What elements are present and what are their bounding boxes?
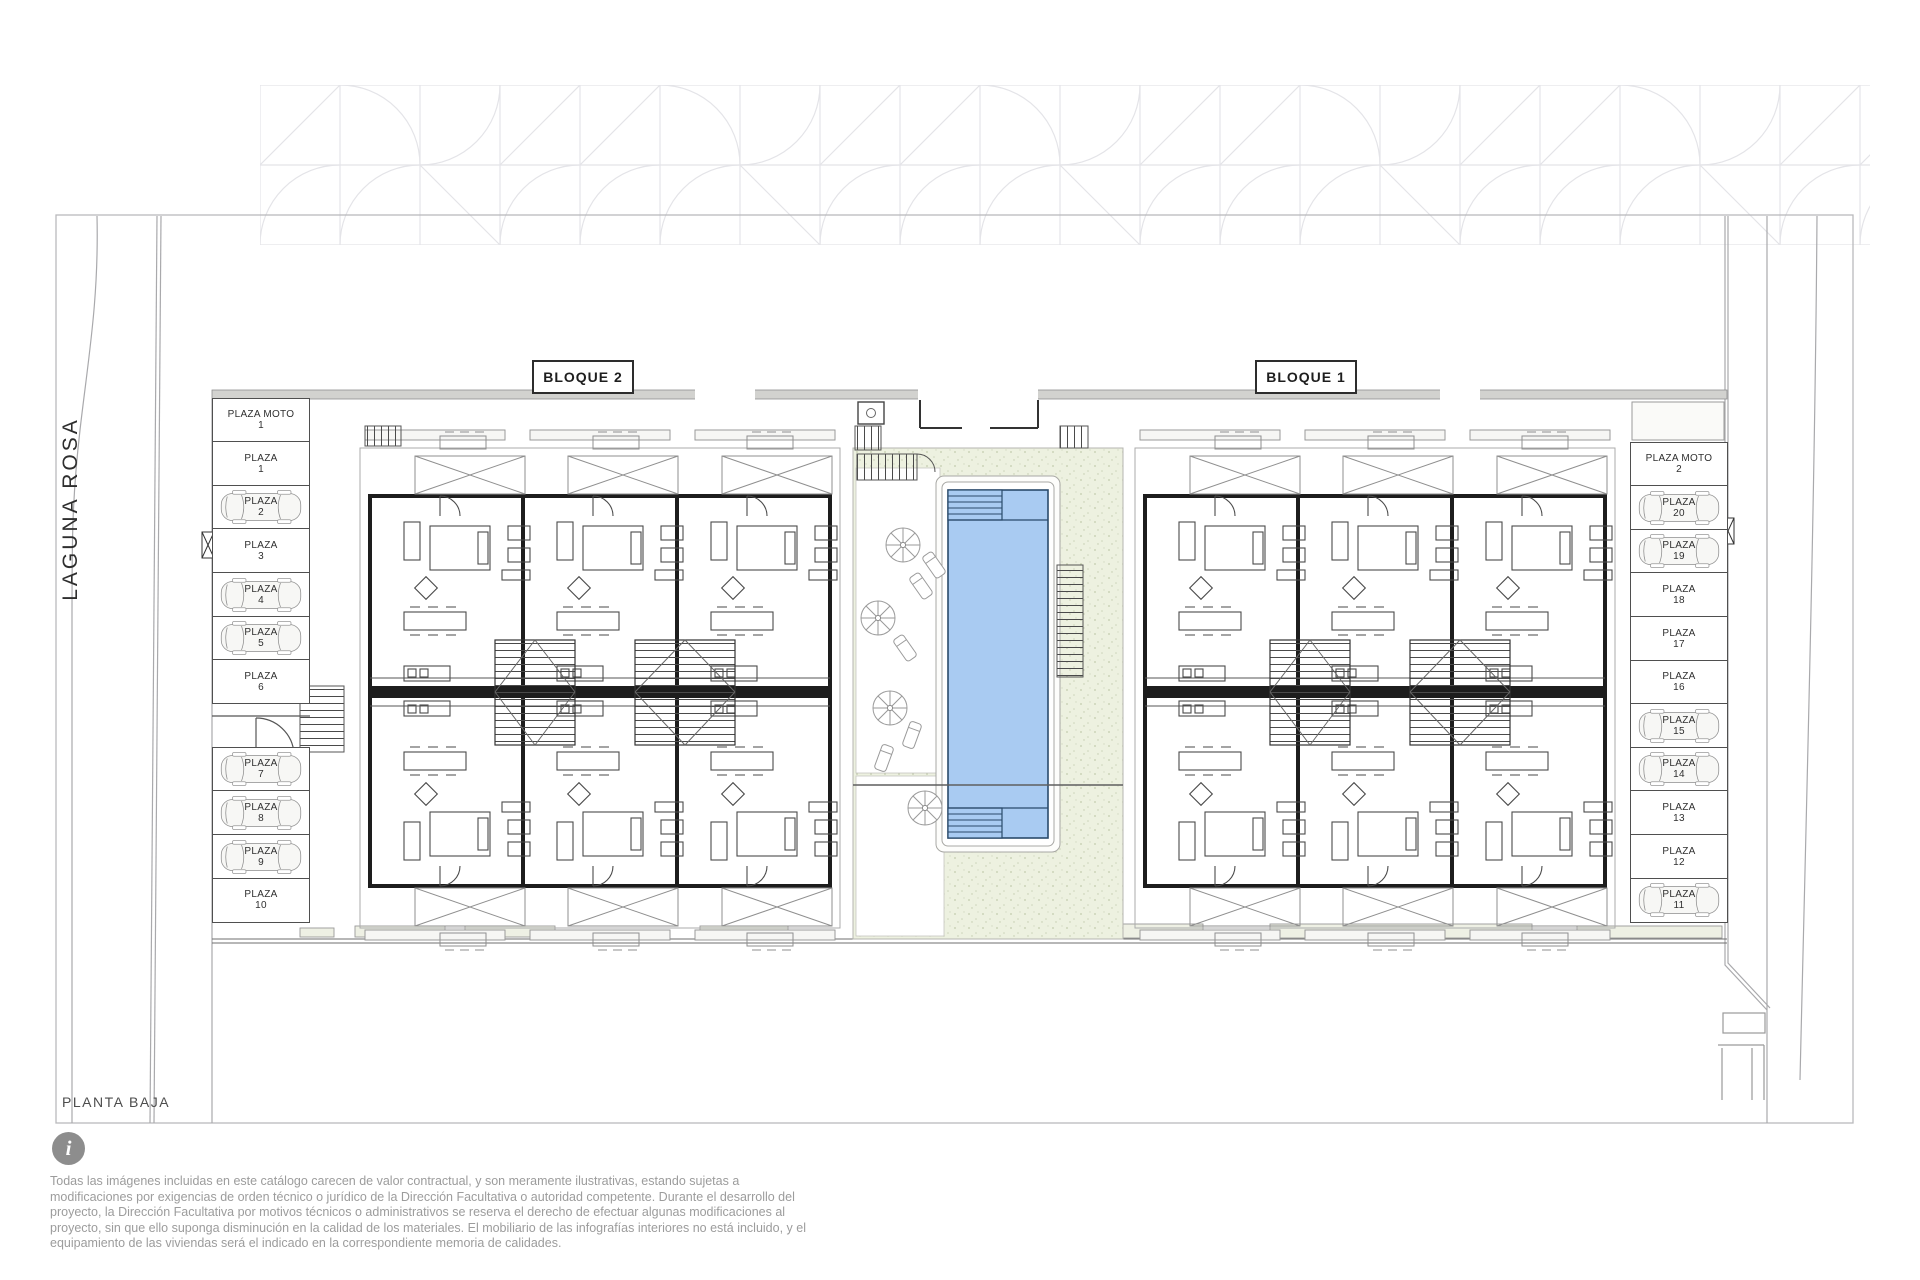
block-1-plan: [1135, 430, 1615, 950]
pool-courtyard: [853, 448, 1123, 939]
street-name-label: LAGUNA ROSA: [59, 417, 83, 601]
stall-number: 17: [1673, 639, 1685, 650]
decorative-pattern-band: [260, 85, 1870, 245]
stall-number: 20: [1673, 508, 1685, 519]
parking-stall: PLAZA 15: [1630, 703, 1728, 748]
stall-name: PLAZA: [1662, 540, 1695, 551]
parking-stall: PLAZA 19: [1630, 529, 1728, 574]
block-2-label: BLOQUE 2: [532, 360, 634, 394]
street-name: LAGUNA ROSA: [58, 398, 84, 620]
parking-stall: PLAZA 7: [212, 747, 310, 792]
parking-stall: PLAZA MOTO 1: [212, 398, 310, 443]
parking-stall: PLAZA 20: [1630, 485, 1728, 530]
stall-number: 12: [1673, 857, 1685, 868]
stall-name: PLAZA: [1662, 889, 1695, 900]
parking-strip-left: PLAZA MOTO 1 PLAZA: [212, 399, 310, 923]
parking-group-right: PLAZA MOTO 2 PLAZA: [1630, 442, 1728, 923]
parking-stall: PLAZA 5: [212, 616, 310, 661]
block-2-plan: [360, 430, 840, 950]
stall-number: 10: [255, 900, 267, 911]
stall-name: PLAZA: [1662, 671, 1695, 682]
stall-number: 18: [1673, 595, 1685, 606]
stall-number: 11: [1674, 900, 1685, 911]
stall-name: PLAZA: [244, 758, 277, 769]
stall-name: PLAZA: [1662, 802, 1695, 813]
stall-number: 16: [1673, 682, 1685, 693]
stall-number: 13: [1673, 813, 1685, 824]
plan-title: PLANTA BAJA: [62, 1094, 170, 1110]
stall-number: 15: [1673, 726, 1685, 737]
parking-stall: PLAZA 6: [212, 659, 310, 704]
exterior-stairs-top: [365, 426, 401, 446]
stall-name: PLAZA: [244, 453, 277, 464]
stall-number: 1: [258, 464, 264, 475]
parking-stall: PLAZA 10: [212, 878, 310, 923]
parking-stall: PLAZA 18: [1630, 572, 1728, 617]
street-right-lines: [1725, 216, 1817, 1123]
courtyard-stairs: [1057, 565, 1083, 677]
stall-name: PLAZA: [1662, 846, 1695, 857]
parking-stall: PLAZA 9: [212, 834, 310, 879]
stall-number: 5: [258, 638, 264, 649]
disclaimer-text: Todas las imágenes incluidas en este cat…: [50, 1174, 818, 1252]
stall-name: PLAZA: [1662, 715, 1695, 726]
right-canopy: [1632, 402, 1724, 440]
street-left-lines: [72, 216, 212, 1123]
parking-stall: PLAZA 3: [212, 528, 310, 573]
stall-number: 8: [258, 813, 264, 824]
stall-number: 6: [258, 682, 264, 693]
parking-group-left-upper: PLAZA MOTO 1 PLAZA: [212, 398, 310, 705]
stall-number: 2: [258, 507, 264, 518]
block-2-label-text: BLOQUE 2: [543, 369, 623, 385]
stall-number: 7: [258, 769, 264, 780]
north-wall: [212, 388, 1727, 401]
swimming-pool: [948, 490, 1048, 838]
stall-name: PLAZA: [244, 540, 277, 551]
block-1-label-text: BLOQUE 1: [1266, 369, 1346, 385]
stall-name: PLAZA: [1662, 628, 1695, 639]
parking-stall: PLAZA MOTO 2: [1630, 442, 1728, 487]
stall-name: PLAZA: [244, 627, 277, 638]
stall-name: PLAZA: [1662, 584, 1695, 595]
parking-group-left-lower: PLAZA 7 PLAZA 8: [212, 747, 310, 923]
vestibule-gap: [212, 704, 310, 748]
info-icon: i: [52, 1132, 85, 1165]
parking-stall: PLAZA 8: [212, 790, 310, 835]
stall-number: 4: [258, 595, 264, 606]
parking-stall: PLAZA 17: [1630, 616, 1728, 661]
parking-stall: PLAZA 13: [1630, 790, 1728, 835]
floor-plan-page: LAGUNA ROSA BLOQUE 2 BLOQUE 1: [0, 0, 1920, 1280]
parking-stall: PLAZA 2: [212, 485, 310, 530]
parking-strip-right: PLAZA MOTO 2 PLAZA: [1630, 443, 1728, 923]
stall-name: PLAZA: [244, 889, 277, 900]
stall-number: 2: [1676, 464, 1682, 475]
parking-stall: PLAZA 1: [212, 441, 310, 486]
stall-name: PLAZA: [244, 846, 277, 857]
stall-name: PLAZA: [244, 496, 277, 507]
stall-name: PLAZA: [244, 671, 277, 682]
info-icon-glyph: i: [66, 1136, 72, 1161]
stall-number: 19: [1673, 551, 1685, 562]
stall-number: 9: [258, 857, 264, 868]
stall-name: PLAZA MOTO: [228, 409, 295, 420]
stall-name: PLAZA: [1662, 758, 1695, 769]
utility-structure: [1718, 1013, 1765, 1100]
stall-number: 3: [258, 551, 264, 562]
stall-name: PLAZA: [1662, 497, 1695, 508]
parking-stall: PLAZA 12: [1630, 834, 1728, 879]
stall-number: 1: [258, 420, 264, 431]
parking-stall: PLAZA 16: [1630, 660, 1728, 705]
stall-name: PLAZA: [244, 584, 277, 595]
parking-stall: PLAZA 11: [1630, 878, 1728, 923]
block-1-label: BLOQUE 1: [1255, 360, 1357, 394]
stall-name: PLAZA MOTO: [1646, 453, 1713, 464]
parking-stall: PLAZA 14: [1630, 747, 1728, 792]
stall-name: PLAZA: [244, 802, 277, 813]
parking-stall: PLAZA 4: [212, 572, 310, 617]
stall-number: 14: [1673, 769, 1685, 780]
